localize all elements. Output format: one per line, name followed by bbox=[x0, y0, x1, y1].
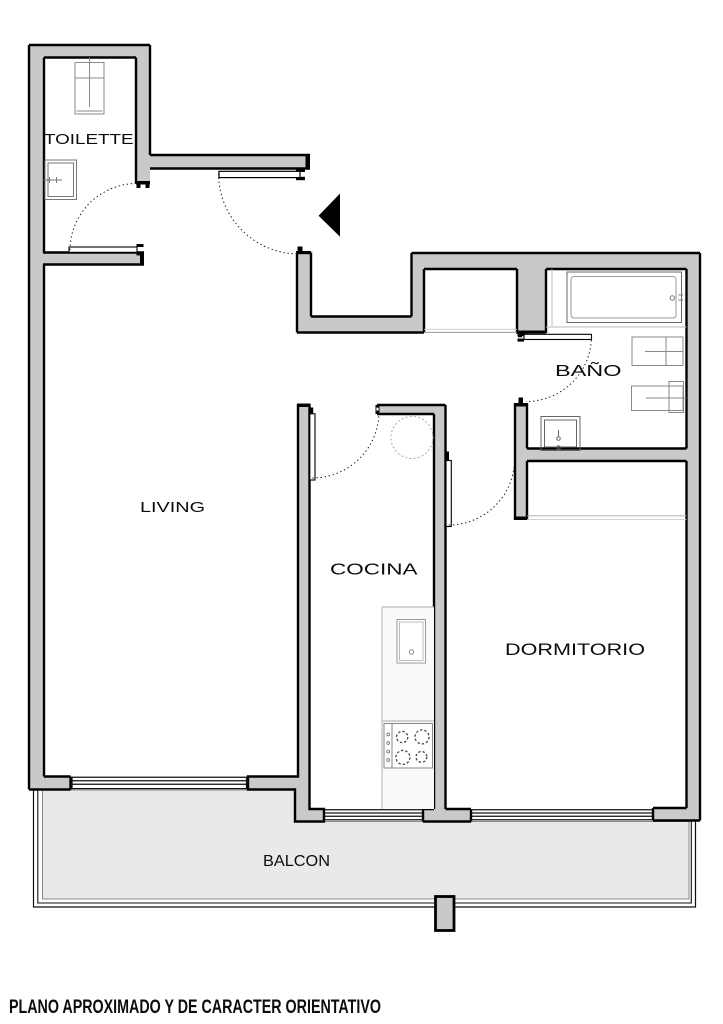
svg-text:LIVING: LIVING bbox=[140, 499, 205, 516]
svg-text:COCINA: COCINA bbox=[330, 562, 419, 579]
svg-text:BALCON: BALCON bbox=[263, 853, 330, 870]
svg-text:DORMITORIO: DORMITORIO bbox=[505, 641, 645, 659]
svg-text:TOILETTE: TOILETTE bbox=[44, 132, 134, 148]
svg-text:PLANO APROXIMADO Y DE CARACTER: PLANO APROXIMADO Y DE CARACTER ORIENTATI… bbox=[9, 997, 381, 1018]
svg-text:BAÑO: BAÑO bbox=[555, 363, 622, 380]
